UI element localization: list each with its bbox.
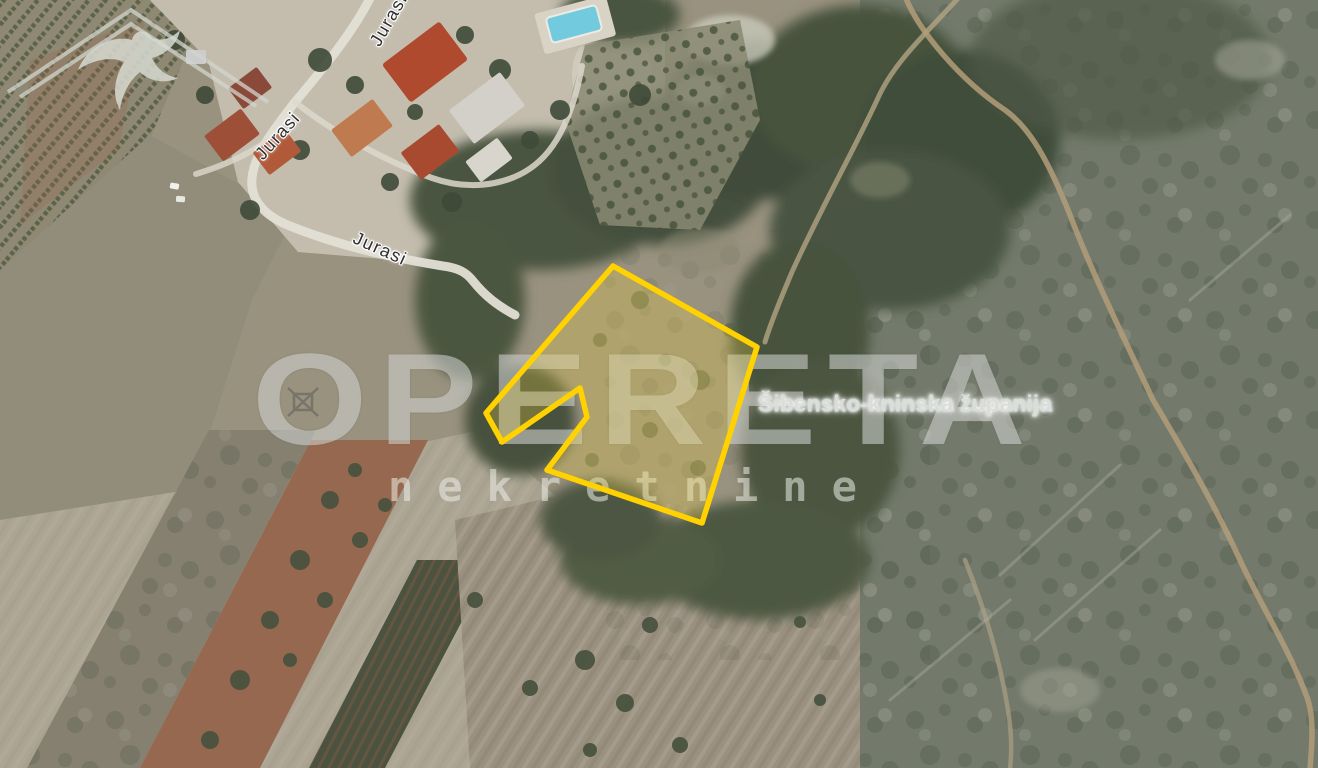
map-canvas[interactable]: OPERETA nekretnine Jurasi Jurasi Jurasi …: [0, 0, 1318, 768]
pool-deck: [534, 0, 616, 55]
dirt-path-field: [965, 560, 1011, 768]
car: [176, 196, 185, 203]
house-roof: [382, 21, 468, 103]
forest-area: [410, 0, 1270, 620]
swallow-icon: [78, 30, 180, 110]
street-label-text: Jurasi: [366, 0, 412, 49]
dirt-path-right: [765, 0, 960, 342]
region-label-text: Šibensko-kninska županija: [758, 391, 1052, 417]
watermark-tagline: nekretnine: [388, 466, 881, 508]
watermark-logo: [0, 0, 276, 116]
street-label-jurasi-1: Jurasi: [366, 0, 413, 50]
street-label-jurasi-2: Jurasi: [251, 108, 305, 164]
olive-grove: [565, 20, 760, 230]
region-label-county: Šibensko-kninska županija: [758, 391, 1052, 418]
street-label-text: Jurasi: [251, 108, 304, 164]
house-roof: [401, 124, 460, 180]
road-branch: [295, 66, 582, 185]
house-roof: [331, 99, 393, 157]
swimming-pool: [546, 5, 603, 44]
pool-house-roof: [564, 1, 612, 43]
car: [170, 182, 180, 189]
street-label-text: Jurasi: [350, 228, 410, 269]
bottom-field: [455, 495, 1045, 768]
house-roof: [204, 108, 260, 161]
warehouse-roof: [449, 72, 525, 144]
house-roof: [465, 138, 513, 183]
street-label-jurasi-3: Jurasi: [350, 228, 411, 270]
